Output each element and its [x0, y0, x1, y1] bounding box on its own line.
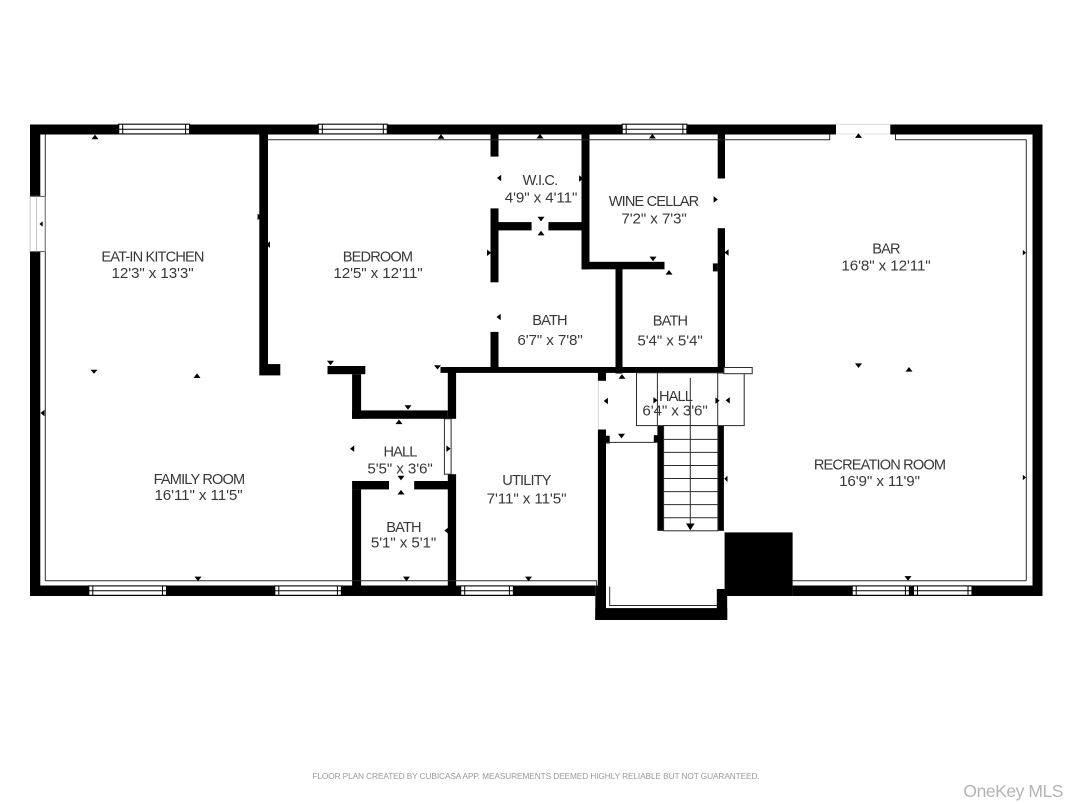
svg-text:W.I.C.: W.I.C.	[523, 173, 558, 189]
svg-text:6'4" x 3'6": 6'4" x 3'6"	[642, 403, 707, 420]
svg-text:HALL: HALL	[383, 445, 417, 461]
svg-text:BATH: BATH	[653, 314, 688, 330]
svg-text:OneKey MLS: OneKey MLS	[963, 781, 1063, 801]
svg-text:FLOOR PLAN CREATED BY CUBICASA: FLOOR PLAN CREATED BY CUBICASA APP. MEAS…	[312, 771, 759, 781]
svg-text:5'5" x 3'6": 5'5" x 3'6"	[367, 461, 432, 478]
svg-text:5'1" x 5'1": 5'1" x 5'1"	[371, 535, 436, 552]
svg-text:16'8" x 12'11": 16'8" x 12'11"	[841, 258, 930, 275]
svg-text:BEDROOM: BEDROOM	[343, 250, 412, 266]
svg-text:FAMILY ROOM: FAMILY ROOM	[154, 472, 245, 488]
svg-text:4'9" x 4'11": 4'9" x 4'11"	[505, 190, 578, 207]
svg-text:EAT-IN KITCHEN: EAT-IN KITCHEN	[101, 250, 203, 266]
svg-text:16'9" x 11'9": 16'9" x 11'9"	[839, 473, 920, 490]
svg-text:BATH: BATH	[532, 313, 567, 329]
svg-text:6'7" x 7'8": 6'7" x 7'8"	[517, 332, 582, 349]
svg-text:5'4" x 5'4": 5'4" x 5'4"	[637, 333, 702, 350]
svg-text:12'3" x 13'3": 12'3" x 13'3"	[112, 265, 194, 282]
svg-text:7'2" x 7'3": 7'2" x 7'3"	[621, 211, 686, 228]
svg-text:12'5" x 12'11": 12'5" x 12'11"	[333, 265, 422, 282]
svg-text:WINE CELLAR: WINE CELLAR	[609, 194, 699, 210]
svg-text:16'11" x 11'5": 16'11" x 11'5"	[154, 487, 242, 504]
svg-text:BAR: BAR	[872, 242, 900, 258]
svg-text:RECREATION ROOM: RECREATION ROOM	[814, 458, 945, 474]
svg-text:UTILITY: UTILITY	[502, 473, 551, 489]
svg-text:7'11" x 11'5": 7'11" x 11'5"	[487, 491, 567, 508]
